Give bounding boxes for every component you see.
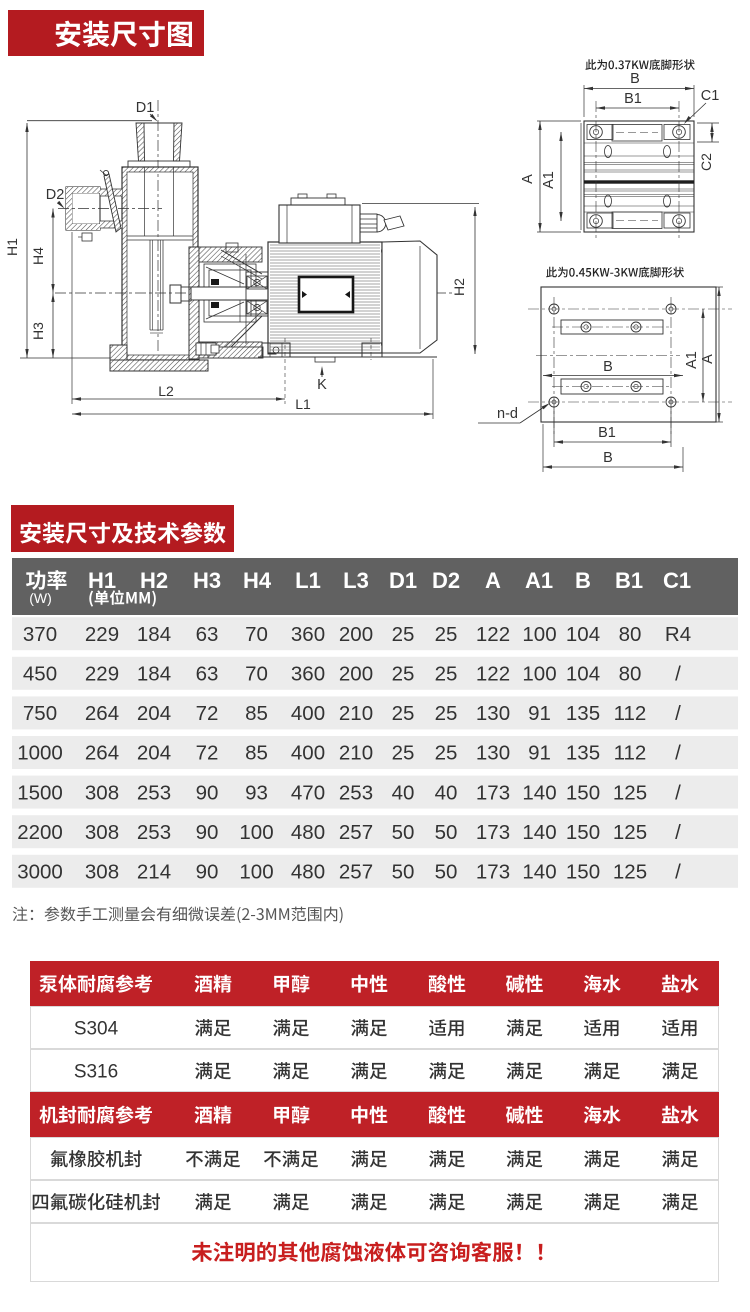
svg-text:A1: A1 bbox=[684, 351, 700, 369]
svg-text:H3: H3 bbox=[30, 322, 46, 340]
svg-text:40: 40 bbox=[435, 781, 458, 804]
svg-text:135: 135 bbox=[566, 702, 600, 725]
svg-text:3000: 3000 bbox=[17, 861, 63, 884]
svg-text:125: 125 bbox=[613, 821, 647, 844]
svg-text:A: A bbox=[485, 568, 501, 593]
svg-text:R4: R4 bbox=[665, 623, 691, 646]
svg-text:S304: S304 bbox=[74, 1018, 119, 1039]
svg-text:470: 470 bbox=[291, 781, 325, 804]
svg-text:112: 112 bbox=[614, 742, 647, 765]
svg-text:72: 72 bbox=[196, 742, 219, 765]
svg-text:/: / bbox=[675, 781, 681, 804]
svg-text:B: B bbox=[630, 71, 640, 87]
svg-text:308: 308 bbox=[85, 821, 119, 844]
svg-text:150: 150 bbox=[566, 821, 600, 844]
svg-text:70: 70 bbox=[245, 663, 268, 686]
svg-text:K: K bbox=[317, 377, 327, 393]
svg-text:104: 104 bbox=[566, 623, 600, 646]
svg-text:308: 308 bbox=[85, 781, 119, 804]
svg-text:1000: 1000 bbox=[17, 742, 63, 765]
svg-text:360: 360 bbox=[291, 623, 325, 646]
svg-text:L3: L3 bbox=[343, 568, 369, 593]
svg-text:264: 264 bbox=[85, 702, 119, 725]
svg-text:480: 480 bbox=[291, 861, 325, 884]
svg-text:C2: C2 bbox=[698, 153, 714, 171]
svg-text:B1: B1 bbox=[598, 425, 616, 441]
svg-text:H3: H3 bbox=[193, 568, 221, 593]
svg-text:H4: H4 bbox=[243, 568, 272, 593]
svg-text:/: / bbox=[675, 663, 681, 686]
svg-text:122: 122 bbox=[476, 663, 510, 686]
svg-text:A: A bbox=[520, 174, 536, 184]
svg-text:50: 50 bbox=[435, 821, 458, 844]
svg-text:/: / bbox=[675, 861, 681, 884]
svg-text:91: 91 bbox=[528, 702, 551, 725]
svg-text:63: 63 bbox=[196, 623, 219, 646]
svg-text:72: 72 bbox=[196, 702, 219, 725]
svg-text:50: 50 bbox=[392, 861, 415, 884]
svg-text:50: 50 bbox=[392, 821, 415, 844]
svg-text:25: 25 bbox=[392, 623, 415, 646]
svg-text:63: 63 bbox=[196, 663, 219, 686]
svg-text:50: 50 bbox=[435, 861, 458, 884]
svg-text:85: 85 bbox=[245, 702, 268, 725]
svg-text:253: 253 bbox=[137, 781, 171, 804]
svg-text:204: 204 bbox=[137, 702, 171, 725]
svg-text:25: 25 bbox=[435, 702, 458, 725]
svg-text:91: 91 bbox=[528, 742, 551, 765]
svg-text:125: 125 bbox=[613, 781, 647, 804]
svg-text:150: 150 bbox=[566, 861, 600, 884]
svg-text:B: B bbox=[603, 359, 613, 375]
svg-text:400: 400 bbox=[291, 702, 325, 725]
svg-text:1500: 1500 bbox=[17, 781, 63, 804]
svg-text:140: 140 bbox=[522, 781, 556, 804]
svg-text:25: 25 bbox=[435, 623, 458, 646]
svg-text:480: 480 bbox=[291, 821, 325, 844]
svg-text:135: 135 bbox=[566, 742, 600, 765]
svg-text:173: 173 bbox=[476, 781, 510, 804]
svg-text:370: 370 bbox=[23, 623, 57, 646]
svg-text:210: 210 bbox=[339, 742, 373, 765]
svg-text:184: 184 bbox=[137, 663, 171, 686]
svg-text:2200: 2200 bbox=[17, 821, 63, 844]
svg-text:B: B bbox=[575, 568, 591, 593]
svg-text:90: 90 bbox=[196, 821, 219, 844]
svg-text:450: 450 bbox=[23, 663, 57, 686]
svg-text:257: 257 bbox=[339, 861, 373, 884]
svg-text:/: / bbox=[675, 742, 681, 765]
svg-text:90: 90 bbox=[196, 781, 219, 804]
svg-text:173: 173 bbox=[476, 861, 510, 884]
svg-text:A: A bbox=[700, 354, 716, 364]
svg-text:80: 80 bbox=[619, 663, 642, 686]
svg-text:B1: B1 bbox=[615, 568, 643, 593]
svg-text:B1: B1 bbox=[624, 91, 642, 107]
svg-text:/: / bbox=[675, 702, 681, 725]
svg-text:25: 25 bbox=[392, 702, 415, 725]
svg-text:H2: H2 bbox=[451, 278, 467, 296]
svg-text:70: 70 bbox=[245, 623, 268, 646]
svg-text:360: 360 bbox=[291, 663, 325, 686]
svg-text:25: 25 bbox=[392, 663, 415, 686]
svg-text:264: 264 bbox=[85, 742, 119, 765]
svg-text:229: 229 bbox=[85, 623, 119, 646]
svg-text:D2: D2 bbox=[432, 568, 460, 593]
svg-text:(W): (W) bbox=[29, 590, 52, 606]
svg-text:C1: C1 bbox=[701, 88, 720, 104]
svg-text:140: 140 bbox=[522, 861, 556, 884]
svg-text:184: 184 bbox=[137, 623, 171, 646]
svg-text:B: B bbox=[603, 450, 613, 466]
svg-text:H4: H4 bbox=[30, 247, 46, 265]
svg-text:100: 100 bbox=[239, 821, 273, 844]
svg-text:200: 200 bbox=[339, 663, 373, 686]
svg-text:80: 80 bbox=[619, 623, 642, 646]
svg-text:C1: C1 bbox=[663, 568, 691, 593]
svg-text:L1: L1 bbox=[295, 568, 321, 593]
svg-text:204: 204 bbox=[137, 742, 171, 765]
svg-text:L1: L1 bbox=[295, 396, 311, 412]
svg-text:125: 125 bbox=[613, 861, 647, 884]
svg-text:25: 25 bbox=[435, 663, 458, 686]
svg-text:S316: S316 bbox=[74, 1061, 118, 1082]
svg-text:400: 400 bbox=[291, 742, 325, 765]
svg-text:112: 112 bbox=[614, 702, 647, 725]
svg-text:A1: A1 bbox=[541, 171, 557, 189]
svg-text:A1: A1 bbox=[525, 568, 553, 593]
svg-text:n-d: n-d bbox=[497, 406, 518, 422]
svg-text:D2: D2 bbox=[46, 187, 65, 203]
svg-text:214: 214 bbox=[137, 861, 171, 884]
svg-text:D1: D1 bbox=[136, 100, 155, 116]
svg-text:253: 253 bbox=[137, 821, 171, 844]
svg-text:H2: H2 bbox=[140, 568, 168, 593]
svg-text:H1: H1 bbox=[88, 568, 116, 593]
svg-text:150: 150 bbox=[566, 781, 600, 804]
svg-text:85: 85 bbox=[245, 742, 268, 765]
svg-text:210: 210 bbox=[339, 702, 373, 725]
svg-text:D1: D1 bbox=[389, 568, 417, 593]
svg-text:130: 130 bbox=[476, 742, 510, 765]
svg-text:173: 173 bbox=[476, 821, 510, 844]
svg-text:104: 104 bbox=[566, 663, 600, 686]
svg-text:93: 93 bbox=[245, 781, 268, 804]
svg-text:122: 122 bbox=[476, 623, 510, 646]
svg-text:308: 308 bbox=[85, 861, 119, 884]
svg-text:L2: L2 bbox=[158, 383, 174, 399]
svg-text:90: 90 bbox=[196, 861, 219, 884]
svg-text:750: 750 bbox=[23, 702, 57, 725]
svg-text:200: 200 bbox=[339, 623, 373, 646]
svg-text:257: 257 bbox=[339, 821, 373, 844]
svg-text:100: 100 bbox=[522, 663, 556, 686]
svg-text:25: 25 bbox=[392, 742, 415, 765]
svg-text:229: 229 bbox=[85, 663, 119, 686]
svg-text:130: 130 bbox=[476, 702, 510, 725]
svg-text:253: 253 bbox=[339, 781, 373, 804]
svg-text:100: 100 bbox=[239, 861, 273, 884]
svg-text:100: 100 bbox=[522, 623, 556, 646]
svg-text:25: 25 bbox=[435, 742, 458, 765]
svg-text:H1: H1 bbox=[4, 238, 20, 256]
svg-text:/: / bbox=[675, 821, 681, 844]
svg-text:40: 40 bbox=[392, 781, 415, 804]
svg-text:140: 140 bbox=[522, 821, 556, 844]
